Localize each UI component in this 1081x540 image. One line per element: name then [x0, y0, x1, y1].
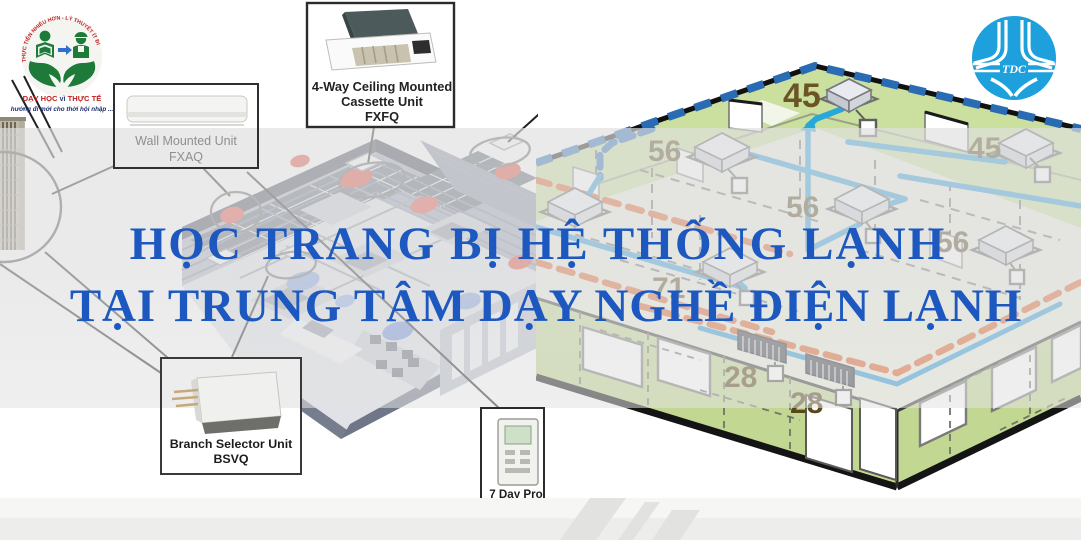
svg-text:hướng đi mới cho thời hội nhập: hướng đi mới cho thời hội nhập ...: [11, 106, 114, 113]
svg-text:TDC: TDC: [1002, 62, 1027, 76]
svg-text:BSVQ: BSVQ: [213, 452, 248, 466]
svg-text:FXAQ: FXAQ: [169, 150, 203, 164]
svg-text:Wall Mounted Unit: Wall Mounted Unit: [135, 134, 237, 148]
svg-text:TẠI TRUNG TÂM DẠY NGHỀ ĐIỆN LẠ: TẠI TRUNG TÂM DẠY NGHỀ ĐIỆN LẠNH: [70, 279, 1022, 332]
svg-text:4-Way Ceiling Mounted: 4-Way Ceiling Mounted: [312, 79, 452, 94]
svg-text:HỌC TRANG BỊ HỆ THỐNG LẠNH: HỌC TRANG BỊ HỆ THỐNG LẠNH: [130, 217, 947, 270]
svg-text:45: 45: [783, 77, 821, 115]
svg-text:Branch Selector Unit: Branch Selector Unit: [170, 437, 293, 451]
svg-text:FXFQ: FXFQ: [365, 109, 399, 124]
svg-text:Cassette Unit: Cassette Unit: [341, 94, 424, 109]
